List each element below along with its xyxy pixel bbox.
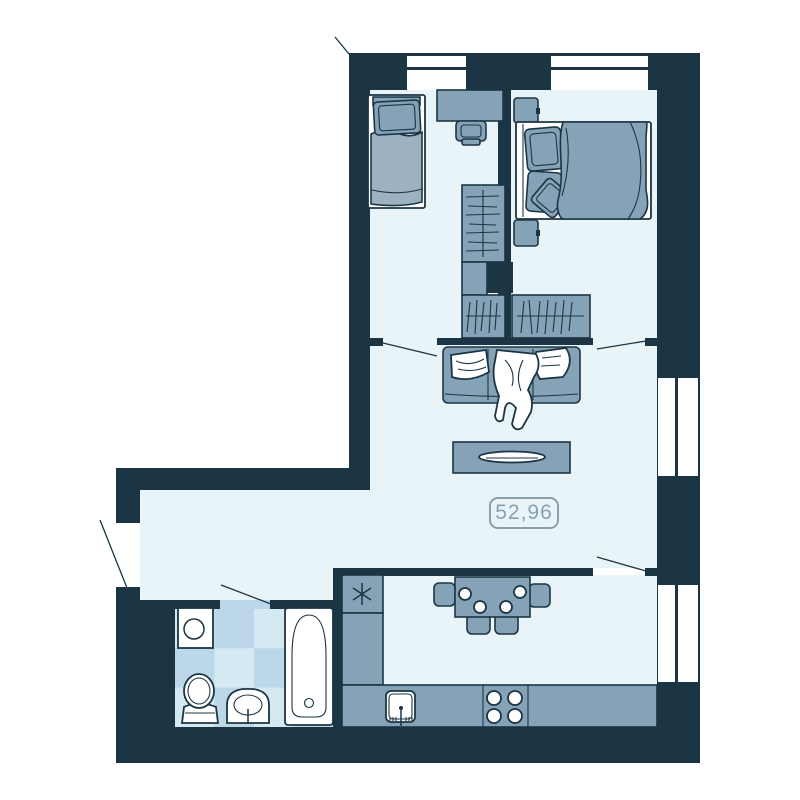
area-label: 52,96 <box>489 497 559 529</box>
kitchen-counter-icon <box>342 613 383 685</box>
bedroom2-door-hinge-block <box>645 338 657 346</box>
washing-machine-icon <box>178 608 213 648</box>
kitchen-sink-icon <box>386 691 415 726</box>
hall-connector-floor <box>348 490 370 575</box>
nightstand-icon <box>514 220 538 246</box>
cabinet-icon <box>462 262 487 295</box>
bathroom-sink-icon <box>227 689 269 724</box>
wall-bedrooms-living <box>437 338 593 345</box>
entry-door-swing-icon <box>100 520 127 588</box>
floor-plan-drawing <box>0 0 800 800</box>
window-icon <box>407 56 466 90</box>
wall-bathroom-left <box>140 600 175 727</box>
sofa-pillow <box>534 348 570 379</box>
floor-plan: 52,96 <box>0 0 800 800</box>
double-bed-icon <box>516 122 651 219</box>
dining-chair-icon <box>434 583 455 606</box>
wall-hall-top <box>116 468 370 490</box>
corner-leader-line <box>335 37 349 54</box>
window-icon <box>658 378 698 476</box>
desk-icon <box>437 90 503 121</box>
wall-bottom <box>116 727 700 763</box>
bedroom1-door-hinge-block <box>370 338 383 346</box>
wall-entry-upper <box>116 468 140 523</box>
dining-chair-icon <box>529 584 550 607</box>
wardrobe-hangers-right-icon <box>512 295 590 338</box>
wall-left-upper <box>349 53 370 490</box>
coffee-table-icon <box>453 442 570 473</box>
shaft-block <box>485 262 513 293</box>
plate-icon <box>514 586 526 598</box>
nightstand-icon <box>514 98 538 123</box>
wardrobe-hangers-left-icon <box>462 295 505 338</box>
wardrobe-rail-icon <box>462 185 505 262</box>
window-icon <box>551 56 648 90</box>
bathtub-icon <box>285 608 333 725</box>
plate-icon <box>459 588 471 600</box>
window-icon <box>658 585 698 682</box>
hallway-floor <box>140 490 348 600</box>
single-bed-icon <box>368 95 425 208</box>
vent-asterisk-icon <box>342 575 383 613</box>
sofa-pillow <box>451 350 489 379</box>
plate-icon <box>500 601 512 613</box>
kitchen-door-hinge-block <box>645 568 657 576</box>
desk-chair-icon <box>456 121 486 145</box>
plate-icon <box>474 601 486 613</box>
